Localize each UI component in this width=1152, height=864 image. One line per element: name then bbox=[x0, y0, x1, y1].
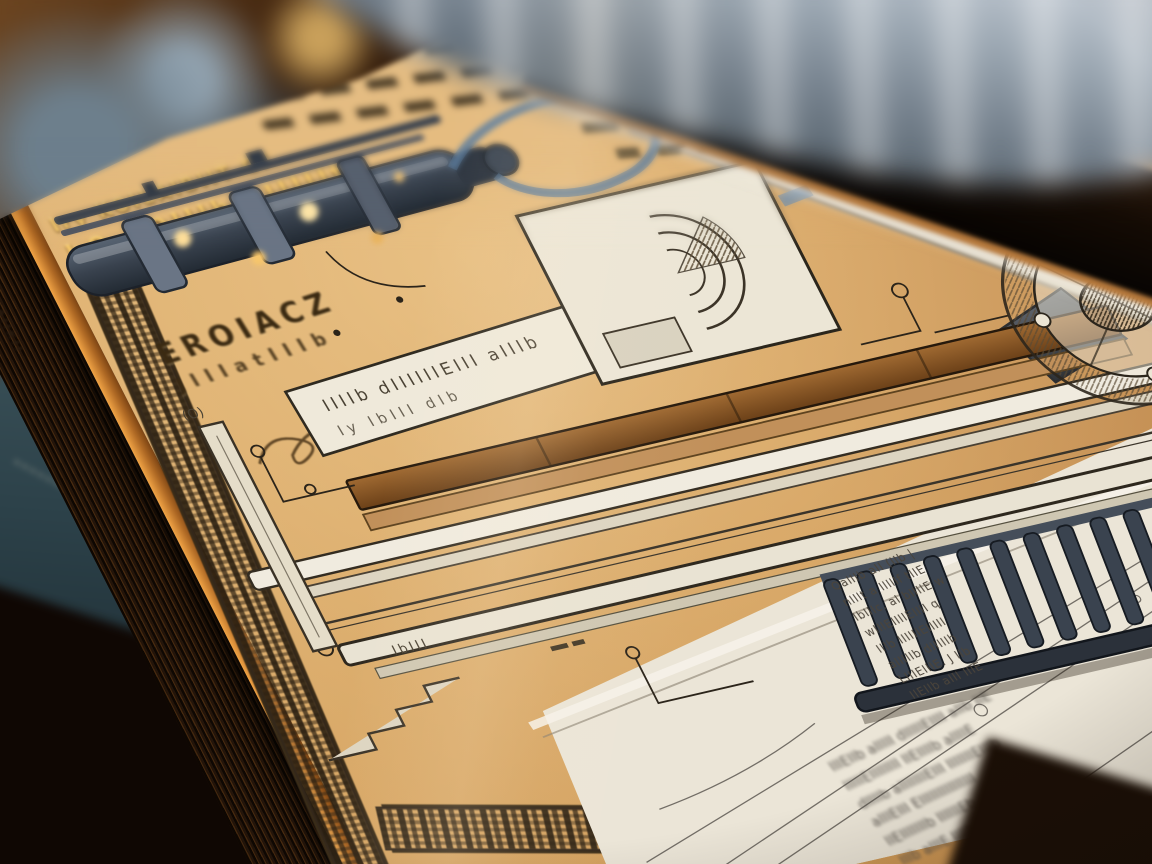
photo-scene: IIEIV OIAIIKII Iry KOILAIBIIT CF bO GQII… bbox=[0, 0, 1152, 864]
post-label: (O) bbox=[179, 405, 207, 424]
stepped-part bbox=[305, 678, 484, 761]
